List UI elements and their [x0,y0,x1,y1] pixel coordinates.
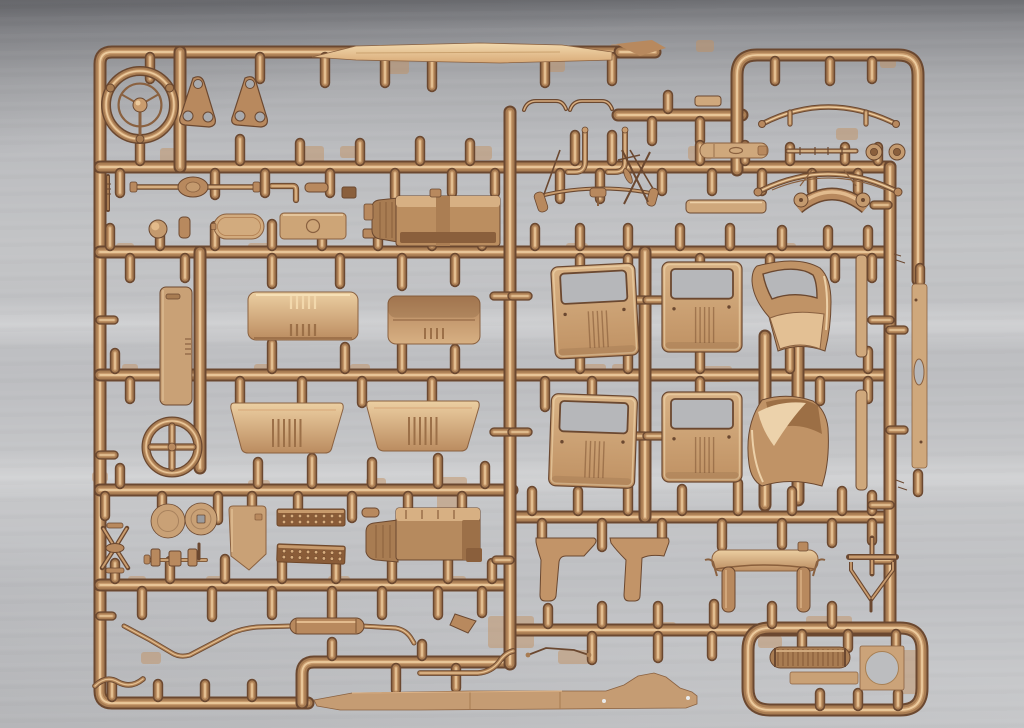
engine-block-upper [364,189,500,246]
roof-bow-left [524,101,566,110]
disc-small-left [866,144,882,160]
chassis-rail-long [314,673,697,710]
fender-bracket-right [610,538,669,601]
chassis-sill-long [912,284,927,468]
tread-plate-lower [277,544,346,564]
bracket-triangle-right [232,77,268,127]
fender-bracket-left [536,538,596,601]
sprue-render [0,0,1024,728]
rocker-strip-upper [856,255,867,357]
door-front-left [551,263,640,359]
door-pillar-panel [160,287,192,405]
seat-back-front [248,292,358,340]
headlight-disc-right [185,503,217,535]
spare-wheel-bracket [146,421,198,473]
exhaust-pipe [124,618,414,656]
door-front-right [662,262,742,352]
tiny-cylinder-2 [362,508,379,517]
mount-plate-hole [860,646,904,690]
headlight-disc-left [151,504,185,538]
roof-bow-right [570,101,612,110]
tread-plate-upper [277,509,345,526]
front-axle [130,177,260,197]
seat-frame-band [794,192,870,208]
muffler-cylinder [770,647,850,668]
seat-cushion-front [231,403,343,453]
ball-joint [149,220,167,238]
quarter-panel-lower [748,396,828,486]
seat-back-rear [388,296,480,344]
angle-clip [450,614,476,633]
door-rear-left [548,394,637,489]
seat-cushion-rear [367,401,479,451]
steering-wheel [106,71,174,143]
sill-step-strip [686,200,766,213]
door-rear-right [662,392,742,482]
elbow-pipe [272,186,296,200]
coil-part [342,187,356,198]
rocker-strip-lower [856,390,867,490]
small-cylinder [305,183,328,192]
sprue-photo-stage [0,0,1024,728]
bench-seat-frame [705,542,825,612]
pedal-assembly [144,544,206,566]
front-bumper-blade [312,43,612,63]
stub-cylinder [179,217,190,238]
oval-plate [211,214,264,239]
flat-strip-lower [790,672,858,684]
small-plate-top [695,96,721,106]
shield-plate [229,506,266,570]
engine-block-lower [366,508,482,562]
heat-shield [700,143,768,158]
box-plate [280,213,346,239]
disc-small-right [889,144,905,160]
windshield-frame-upper [759,107,900,128]
